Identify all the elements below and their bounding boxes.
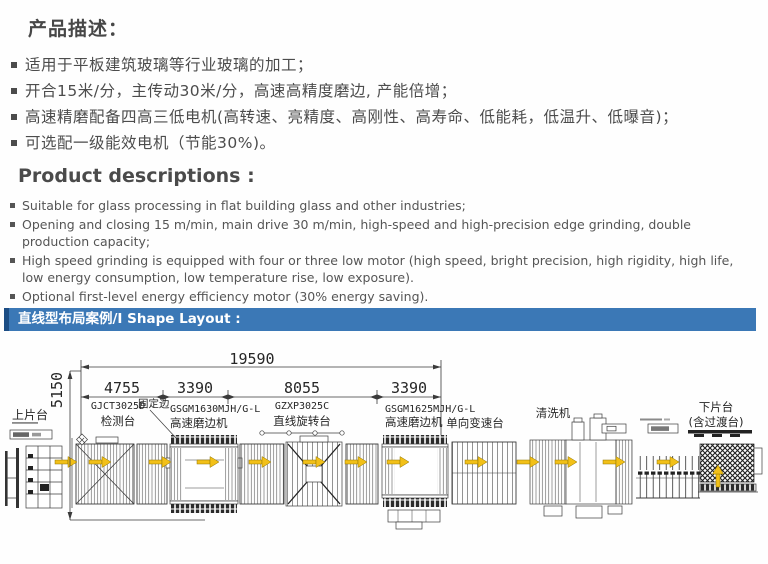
en-section-heading: Product descriptions : — [18, 165, 255, 187]
en-bullet-item: Suitable for glass processing in flat bu… — [10, 197, 758, 215]
station-detect-model: GJCT3025D — [91, 401, 145, 412]
dim-segment-label: 8055 — [284, 379, 320, 397]
bullet-square-icon — [10, 258, 15, 263]
en-bullet-item: Opening and closing 15 m/min, main drive… — [10, 216, 758, 251]
bullet-square-icon — [11, 114, 17, 120]
station-detect-name: 检测台 — [101, 414, 136, 428]
dim-segment-label: 3390 — [391, 379, 427, 397]
bullet-square-icon — [10, 294, 15, 299]
tiny-caption-bars — [640, 419, 662, 421]
banner-label: 直线型布局案例/I Shape Layout : — [18, 311, 241, 327]
cn-bullet-item: 可选配一级能效电机（节能30%)。 — [11, 130, 678, 156]
bullet-square-icon — [11, 88, 17, 94]
tiny-caption-bars — [12, 422, 38, 424]
layout-drawing: 19590 4755 3390 8055 3390 5150 上片台 GJCT3… — [0, 338, 768, 564]
station-loading-label: 上片台 — [12, 407, 48, 422]
bullet-text: High speed grinding is equipped with fou… — [22, 252, 758, 287]
cn-section-heading: 产品描述： — [28, 14, 128, 41]
loading-rack-bar — [5, 451, 8, 506]
station-grinder1-name: 高速磨边机 — [170, 416, 228, 430]
bullet-square-icon — [11, 62, 17, 68]
en-bullet-list: Suitable for glass processing in flat bu… — [10, 197, 758, 306]
station-unloading-label: 下片台 — [699, 400, 734, 414]
en-bullet-item: Optional first-level energy efficiency m… — [10, 288, 758, 306]
station-speed-table-label: 单向变速台 — [446, 416, 504, 430]
bullet-text: 可选配一级能效电机（节能30%)。 — [25, 130, 276, 156]
en-bullet-item: High speed grinding is equipped with fou… — [10, 252, 758, 287]
dim-segment-label: 3390 — [177, 379, 213, 397]
loading-rack-bar — [16, 448, 19, 508]
bullet-text: Optional first-level energy efficiency m… — [22, 288, 428, 306]
bullet-square-icon — [10, 222, 15, 227]
edge-grinder-2 — [382, 435, 448, 529]
bullet-square-icon — [11, 140, 17, 146]
station-grinder1-model: GSGM1630MJH/G-L — [170, 404, 260, 415]
bullet-text: 开合15米/分，主传动30米/分，高速高精度磨边, 产能倍增； — [25, 78, 457, 104]
cn-bullet-item: 开合15米/分，主传动30米/分，高速高精度磨边, 产能倍增； — [11, 78, 678, 104]
station-washer-label: 清洗机 — [536, 406, 571, 420]
station-rotary-model: GZXP3025C — [275, 401, 329, 412]
bullet-text: Suitable for glass processing in flat bu… — [22, 197, 466, 215]
fixed-edge-marker — [77, 434, 88, 445]
rotary-table — [286, 436, 342, 506]
dim-height-label: 5150 — [48, 372, 66, 408]
cn-bullet-item: 适用于平板建筑玻璃等行业玻璃的加工； — [11, 52, 678, 78]
station-unloading-sublabel: (含过渡台) — [689, 415, 744, 429]
conveyor-segment — [137, 444, 167, 504]
conveyor-segment — [346, 444, 378, 504]
dim-total-label: 19590 — [229, 350, 274, 368]
edge-grinder-1 — [166, 435, 242, 513]
catalog-page: 产品描述： 适用于平板建筑玻璃等行业玻璃的加工； 开合15米/分，主传动30米/… — [0, 0, 768, 564]
bullet-text: 适用于平板建筑玻璃等行业玻璃的加工； — [25, 52, 313, 78]
dim-segment-label: 4755 — [104, 379, 140, 397]
bullet-text: 高速精磨配备四高三低电机(高转速、亮精度、高刚性、高寿命、低能耗，低温升、低曝音… — [25, 104, 678, 130]
cn-bullet-list: 适用于平板建筑玻璃等行业玻璃的加工； 开合15米/分，主传动30米/分，高速高精… — [11, 52, 678, 156]
layout-section-banner: 直线型布局案例/I Shape Layout : — [4, 308, 756, 331]
conveyor-segment — [240, 444, 284, 504]
bullet-text: Opening and closing 15 m/min, main drive… — [22, 216, 758, 251]
cn-bullet-item: 高速精磨配备四高三低电机(高转速、亮精度、高刚性、高寿命、低能耗，低温升、低曝音… — [11, 104, 678, 130]
station-rotary-name: 直线旋转台 — [273, 414, 331, 428]
station-grinder2-name: 高速磨边机 — [385, 415, 443, 429]
fixed-edge-label: 固定边 — [138, 397, 170, 410]
i-shape-layout-diagram: 19590 4755 3390 8055 3390 5150 上片台 GJCT3… — [0, 338, 768, 564]
station-grinder2-model: GSGM1625MJH/G-L — [385, 404, 475, 415]
bullet-square-icon — [10, 203, 15, 208]
